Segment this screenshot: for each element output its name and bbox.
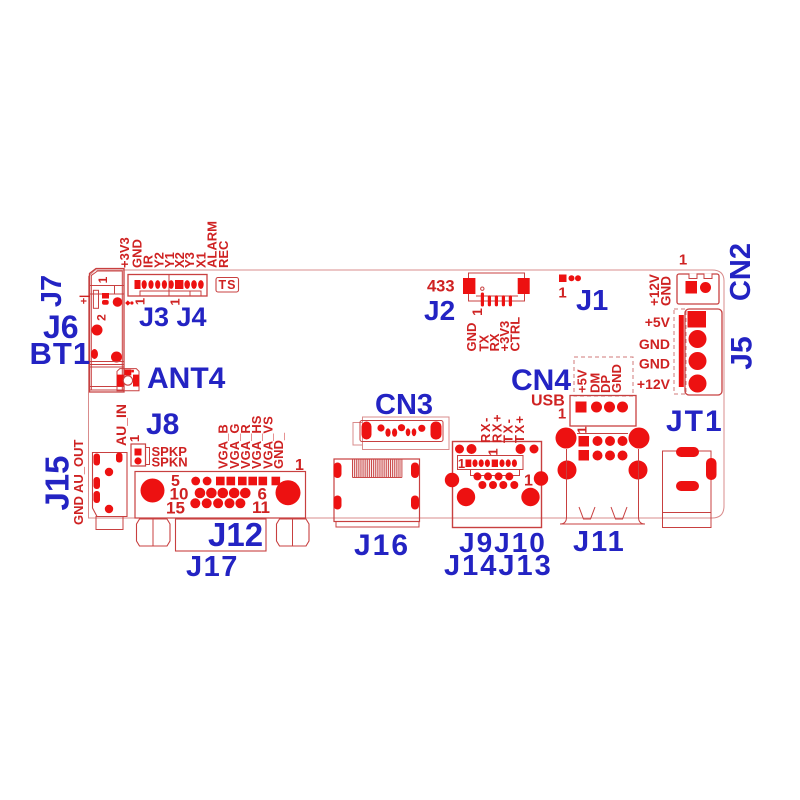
svg-text:J15: J15 — [39, 455, 76, 510]
svg-text:GND_: GND_ — [271, 432, 286, 469]
svg-text:1: 1 — [96, 276, 110, 283]
svg-text:J17: J17 — [186, 551, 239, 583]
svg-text:1: 1 — [486, 448, 501, 455]
svg-text:11: 11 — [252, 498, 270, 517]
svg-text:TX+: TX+ — [512, 414, 527, 443]
svg-text:1: 1 — [575, 426, 590, 433]
svg-text:GND: GND — [639, 336, 670, 352]
svg-text:CTRL: CTRL — [508, 317, 523, 352]
svg-text:1: 1 — [469, 308, 485, 316]
svg-text:USB: USB — [531, 393, 565, 410]
svg-text:1: 1 — [458, 456, 465, 471]
svg-text:+|: +| — [79, 295, 91, 305]
svg-text:GND AU_OUT: GND AU_OUT — [71, 439, 86, 525]
svg-text:J2: J2 — [424, 295, 455, 326]
svg-text:BT1: BT1 — [30, 336, 92, 371]
svg-text:+12V: +12V — [637, 376, 671, 392]
svg-text:2: 2 — [95, 314, 109, 321]
svg-text:1: 1 — [558, 285, 566, 302]
svg-text:J12: J12 — [208, 516, 263, 553]
svg-text:ANT4: ANT4 — [147, 362, 226, 395]
svg-text:CN2: CN2 — [725, 243, 757, 301]
svg-text:J3 J4: J3 J4 — [139, 302, 207, 332]
svg-text:J1: J1 — [576, 285, 608, 317]
svg-text:15: 15 — [166, 499, 185, 518]
svg-text:+5V: +5V — [645, 314, 671, 330]
svg-text:J5: J5 — [726, 336, 759, 369]
svg-text:REC: REC — [216, 240, 231, 268]
svg-text:1: 1 — [127, 435, 142, 442]
svg-text:1: 1 — [524, 473, 533, 490]
svg-text:J8: J8 — [146, 408, 179, 441]
svg-text:JT1: JT1 — [666, 405, 724, 438]
svg-text:J11: J11 — [573, 526, 626, 558]
svg-text:J16: J16 — [354, 529, 410, 562]
svg-text:GND: GND — [639, 356, 670, 372]
svg-text:TS: TS — [219, 278, 237, 292]
svg-text:GND: GND — [658, 276, 673, 306]
svg-text:1: 1 — [679, 252, 687, 269]
svg-text:433: 433 — [427, 278, 455, 296]
svg-text:CN3: CN3 — [375, 389, 433, 421]
svg-text:J7: J7 — [36, 275, 68, 307]
svg-text:GND: GND — [609, 364, 624, 393]
svg-text:J14J13: J14J13 — [444, 550, 553, 582]
svg-text:SPKN: SPKN — [152, 455, 188, 470]
svg-text:1: 1 — [295, 457, 304, 474]
